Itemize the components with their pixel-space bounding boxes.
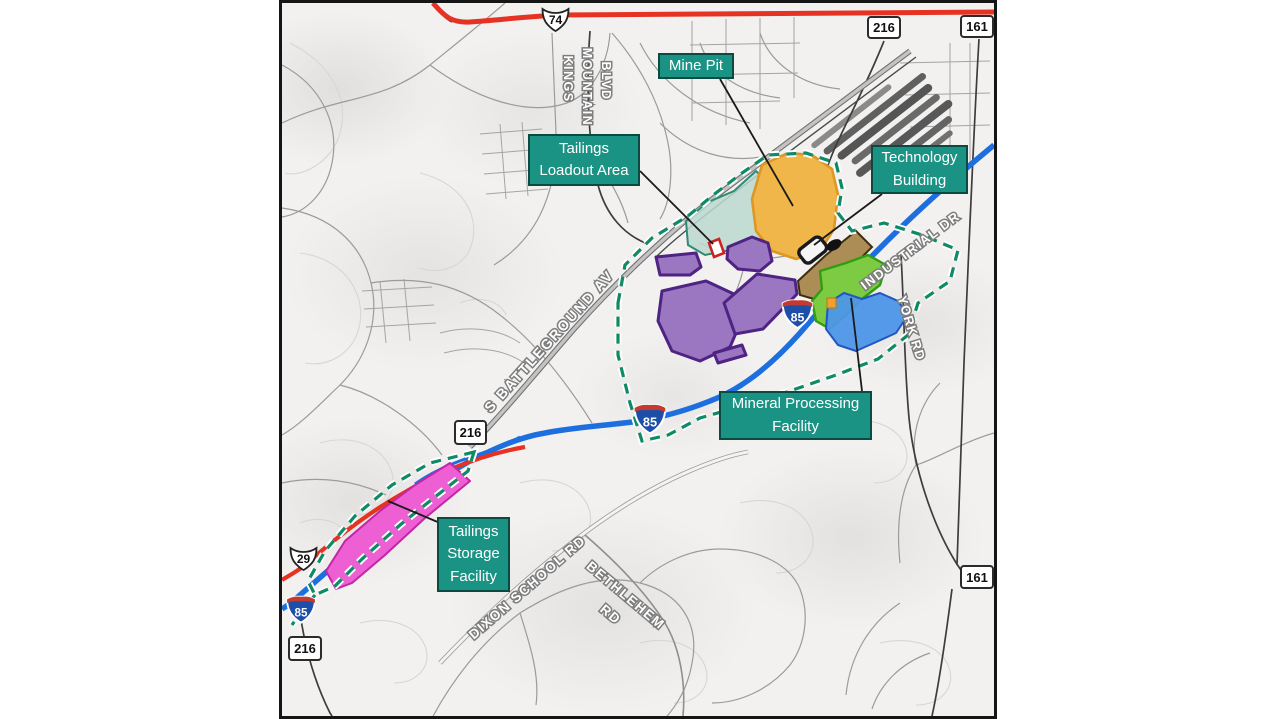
map-canvas[interactable]: KINGS MOUNTAIN BLVD S BATTLEGROUND AV IN…	[282, 3, 994, 716]
tailings-loadout-callout: Tailings Loadout Area	[528, 134, 640, 186]
i85-shield-southwest: 85	[283, 594, 319, 625]
route-shield-216-center: 216	[454, 420, 487, 445]
blvd-label: BLVD	[599, 61, 613, 100]
route-shield-161-north: 161	[960, 15, 994, 38]
mine-pit-callout: Mine Pit	[658, 53, 734, 79]
us-74-road	[433, 3, 994, 22]
tailings-storage-line1: Tailings	[439, 521, 508, 544]
tailings-storage-callout: Tailings Storage Facility	[437, 517, 510, 592]
map-frame: KINGS MOUNTAIN BLVD S BATTLEGROUND AV IN…	[279, 0, 997, 719]
tailings-loadout-line1: Tailings	[530, 138, 638, 161]
svg-text:74: 74	[549, 13, 563, 27]
project-boundary-dashed	[292, 153, 958, 625]
i85-shield-midroad: 85	[630, 402, 670, 436]
route-216-number: 216	[460, 425, 482, 440]
i85-shield-center: 85	[781, 296, 814, 332]
mineral-processing-callout: Mineral Processing Facility	[719, 391, 872, 440]
page: KINGS MOUNTAIN BLVD S BATTLEGROUND AV IN…	[0, 0, 1279, 719]
us-29-shield: 29	[288, 544, 319, 572]
kings-label: KINGS	[561, 55, 575, 102]
us-74-shield: 74	[540, 5, 571, 33]
svg-text:85: 85	[791, 310, 805, 324]
mine-pit-callout-text: Mine Pit	[660, 55, 732, 78]
svg-text:85: 85	[295, 606, 308, 619]
tailings-storage-line2: Storage	[439, 543, 508, 566]
mountain-label: MOUNTAIN	[580, 48, 594, 126]
tailings-loadout-line2: Loadout Area	[530, 160, 638, 183]
orange-structure	[827, 298, 836, 308]
route-shield-216-southwest: 216	[288, 636, 322, 661]
bethlehem-rd-label: RD	[597, 601, 624, 627]
route-shield-216-north: 216	[867, 16, 901, 39]
svg-text:29: 29	[297, 552, 311, 566]
technology-building-line1: Technology	[873, 147, 966, 170]
mineral-processing-line1: Mineral Processing	[721, 393, 870, 416]
route-216-number: 216	[294, 641, 316, 656]
route-161-number: 161	[966, 570, 988, 585]
purple-area-polygons[interactable]	[656, 237, 797, 363]
bethlehem-label: BETHLEHEM	[584, 558, 668, 632]
tailings-storage-line3: Facility	[439, 566, 508, 589]
route-216-number: 216	[873, 20, 895, 35]
mineral-processing-line2: Facility	[721, 416, 870, 439]
route-161-number: 161	[966, 19, 988, 34]
svg-text:85: 85	[643, 415, 657, 430]
technology-building-callout: Technology Building	[871, 145, 968, 194]
battleground-label: S BATTLEGROUND AV	[481, 267, 617, 415]
route-shield-161-southeast: 161	[960, 565, 994, 589]
technology-building-line2: Building	[873, 170, 966, 193]
